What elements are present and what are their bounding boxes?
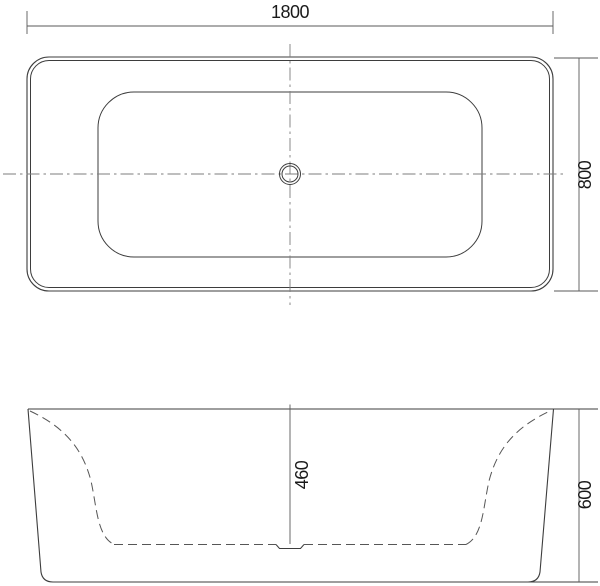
- dimension-label-overall-height: 600: [575, 480, 595, 509]
- dimension-overall-height: 600: [575, 409, 595, 582]
- bathtub-technical-drawing: 1800 800 460: [0, 0, 600, 586]
- top-view: [3, 44, 566, 305]
- basin-hidden-right-wall: [466, 411, 550, 545]
- dimension-label-top-width: 1800: [271, 2, 310, 22]
- dimension-label-basin-depth: 460: [292, 460, 312, 489]
- dimension-top-width: 1800: [27, 2, 553, 34]
- dimension-label-top-depth: 800: [575, 160, 595, 189]
- body-right-edge: [528, 409, 554, 582]
- side-view: [28, 409, 598, 582]
- drawing-svg: 1800 800 460: [0, 0, 600, 586]
- body-left-edge: [28, 409, 53, 582]
- dimension-top-depth: 800: [554, 58, 598, 291]
- basin-hidden-left-wall: [30, 411, 114, 545]
- drain-recess: [276, 545, 304, 549]
- dimension-basin-depth: 460: [290, 405, 312, 545]
